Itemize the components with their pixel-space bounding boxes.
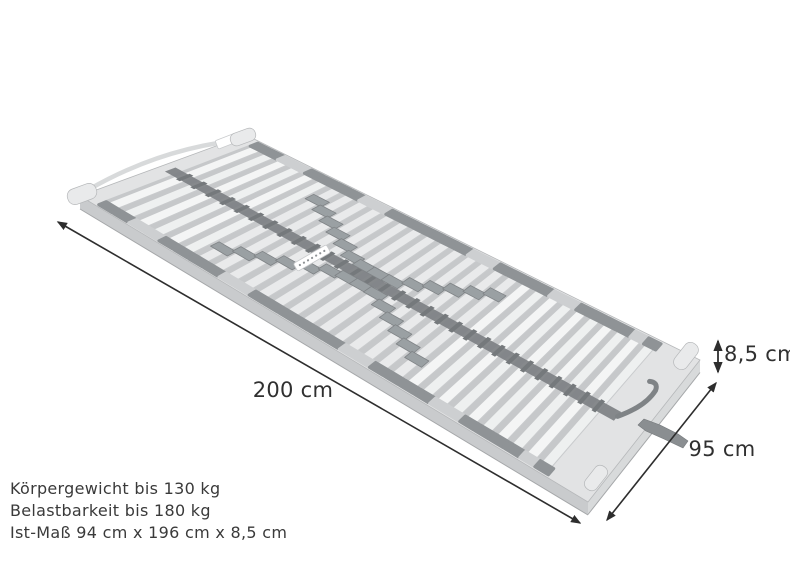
product-specs: Körpergewicht bis 130 kg Belastbarkeit b… <box>10 478 287 544</box>
spec-line-bodyweight: Körpergewicht bis 130 kg <box>10 478 287 500</box>
product-dimension-diagram: 200 cm 95 cm 8,5 cm Körpergewicht bis 13… <box>0 0 790 580</box>
width-dimension-label: 95 cm <box>689 437 756 461</box>
spec-line-actual-size: Ist-Maß 94 cm x 196 cm x 8,5 cm <box>10 522 287 544</box>
spec-line-loadcapacity: Belastbarkeit bis 180 kg <box>10 500 287 522</box>
length-dimension-label: 200 cm <box>253 378 334 402</box>
height-dimension-label: 8,5 cm <box>724 342 790 366</box>
